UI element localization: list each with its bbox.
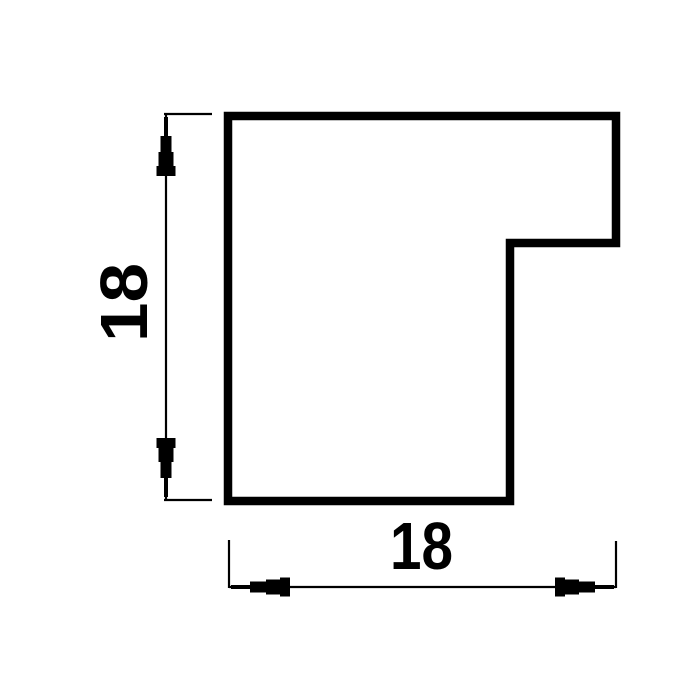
profile-technical-drawing: 18 18 [0, 0, 700, 700]
height-dimension-label: 18 [87, 263, 162, 342]
drawing-canvas: 18 18 [0, 0, 700, 700]
width-dimension-label: 18 [390, 509, 453, 584]
